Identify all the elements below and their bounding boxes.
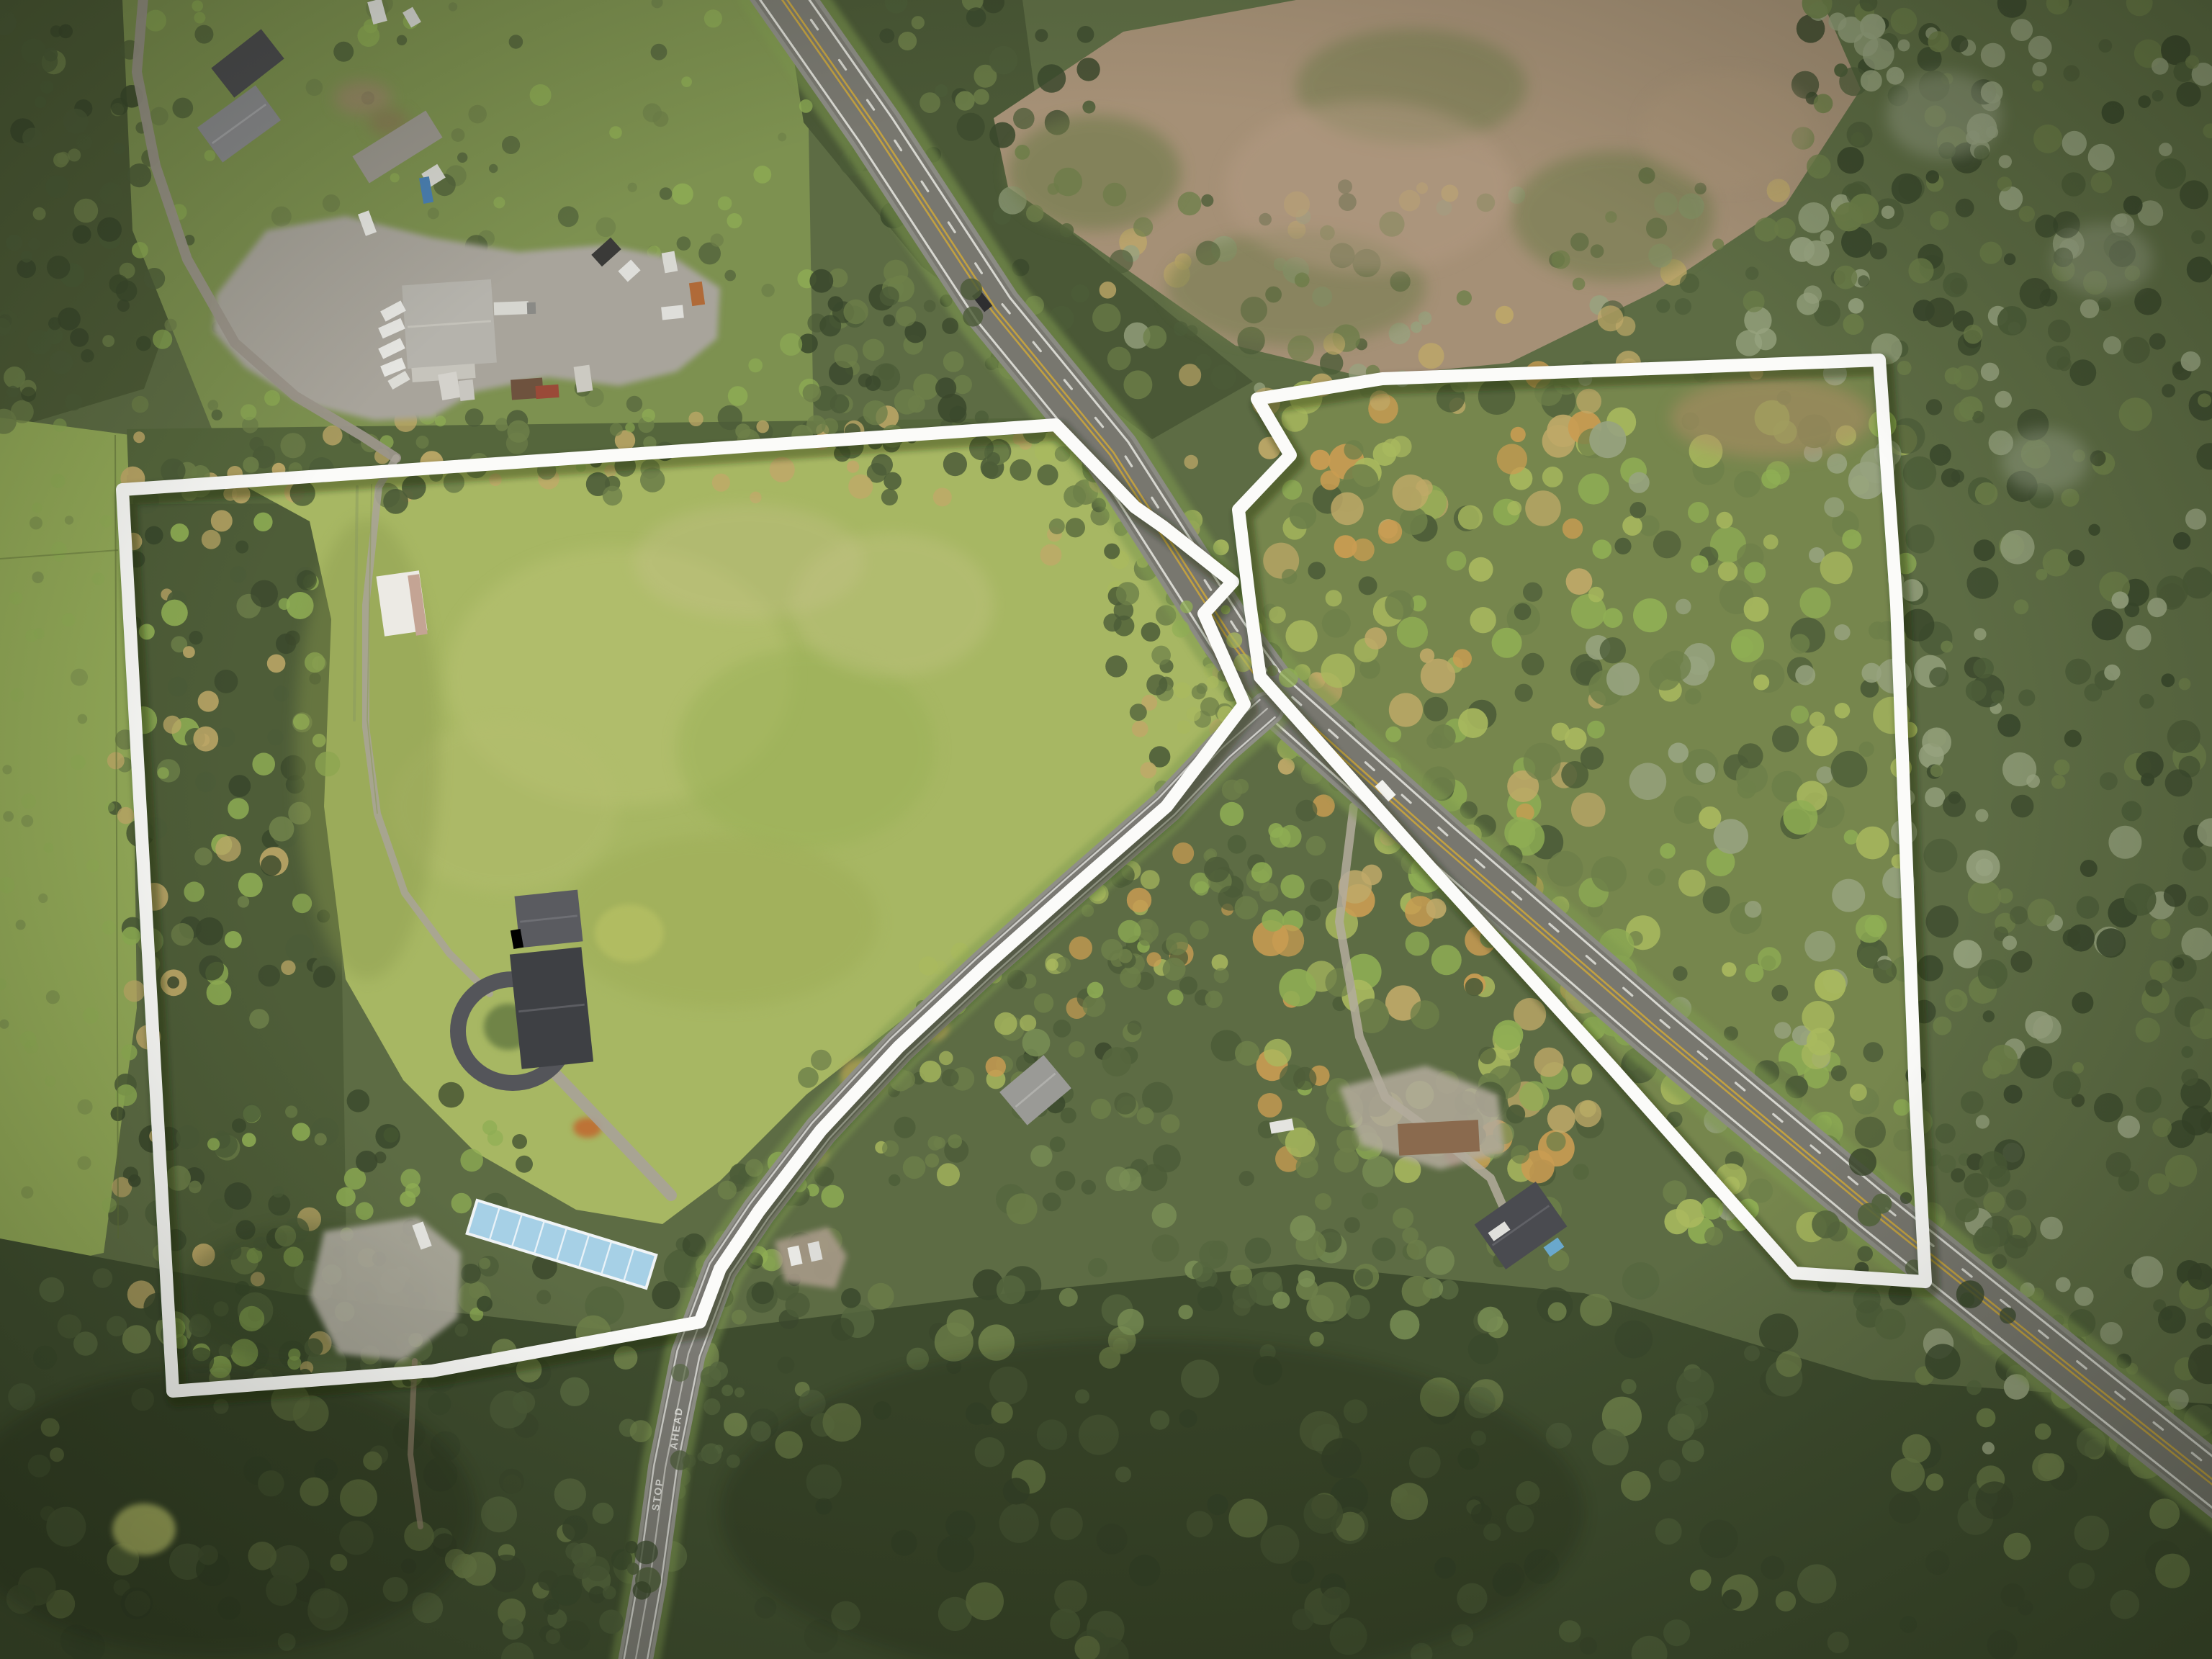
photo-vignette	[0, 0, 2212, 1659]
aerial-photo-canvas: AHEADSTOP	[0, 0, 2212, 1659]
aerial-property-photo: AHEADSTOP	[0, 0, 2212, 1659]
